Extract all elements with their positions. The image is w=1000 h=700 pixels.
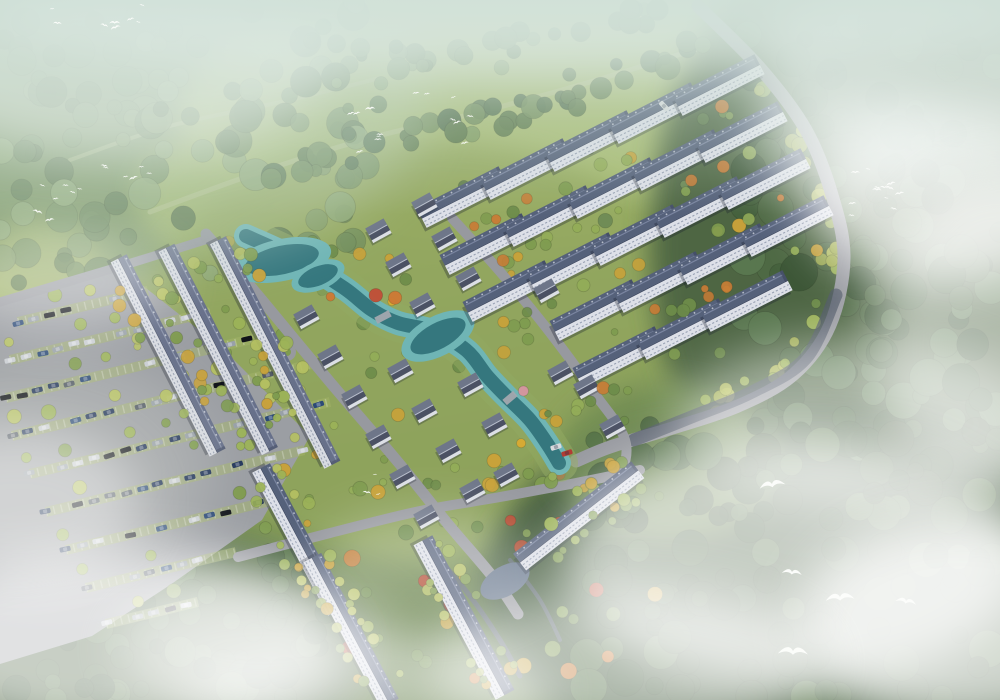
tree xyxy=(547,299,557,309)
tree xyxy=(296,361,309,374)
tree xyxy=(505,515,516,526)
tree xyxy=(369,289,383,303)
tree xyxy=(508,320,521,333)
tree xyxy=(703,291,714,302)
tree xyxy=(548,472,557,481)
tree xyxy=(353,248,366,261)
tree xyxy=(701,285,708,292)
tree xyxy=(522,307,532,317)
tree xyxy=(237,428,247,438)
tree xyxy=(265,421,273,429)
tree xyxy=(4,338,13,347)
tree xyxy=(811,299,821,309)
tree xyxy=(666,305,678,317)
tree xyxy=(650,304,661,315)
tree xyxy=(251,496,263,508)
tree xyxy=(497,346,510,359)
tree xyxy=(260,366,269,375)
tree xyxy=(614,268,625,279)
top-atmosphere xyxy=(0,0,1000,215)
tree xyxy=(577,279,590,292)
tree xyxy=(251,339,263,351)
tree xyxy=(598,213,613,228)
tree xyxy=(518,386,528,396)
tree xyxy=(255,482,265,492)
tree xyxy=(353,481,368,496)
tree xyxy=(260,379,270,389)
tree xyxy=(431,480,441,490)
tree xyxy=(216,385,227,396)
tree xyxy=(632,258,645,271)
tree xyxy=(591,225,599,233)
car-roof xyxy=(268,456,273,460)
tree xyxy=(389,291,402,304)
tree xyxy=(540,239,551,250)
tree xyxy=(135,333,145,343)
tree xyxy=(677,304,690,317)
tree xyxy=(258,351,268,361)
tree xyxy=(523,468,534,479)
tree xyxy=(197,385,206,394)
tree xyxy=(296,575,306,585)
tree xyxy=(290,490,299,499)
tree xyxy=(249,357,257,365)
tree xyxy=(166,319,174,327)
tree xyxy=(200,397,209,406)
tree xyxy=(597,381,610,394)
tree xyxy=(303,497,316,510)
tree xyxy=(545,410,552,417)
tree xyxy=(573,223,582,232)
tree xyxy=(791,246,800,255)
tree xyxy=(370,352,380,362)
tree xyxy=(498,316,509,327)
tree xyxy=(221,400,233,412)
tree xyxy=(288,409,296,417)
tree xyxy=(233,486,246,499)
tree xyxy=(544,517,558,531)
tree xyxy=(273,414,281,422)
tree xyxy=(196,370,207,381)
tree xyxy=(233,317,245,329)
tree xyxy=(243,264,253,274)
tree xyxy=(487,454,501,468)
tree xyxy=(330,421,338,429)
tree xyxy=(279,559,290,570)
tree xyxy=(277,470,286,479)
tree xyxy=(669,348,681,360)
tree xyxy=(304,520,311,527)
tree xyxy=(450,463,459,472)
tree xyxy=(222,305,230,313)
tree xyxy=(513,252,523,262)
tree xyxy=(379,479,386,486)
tree xyxy=(491,215,501,225)
tree xyxy=(714,347,725,358)
tree xyxy=(259,522,271,534)
tree xyxy=(294,563,302,571)
tree xyxy=(290,433,300,443)
tree xyxy=(611,329,618,336)
tree xyxy=(811,244,823,256)
tree xyxy=(194,339,203,348)
tree xyxy=(277,541,285,549)
tree xyxy=(607,460,620,473)
tree xyxy=(721,281,732,292)
tree xyxy=(585,396,596,407)
tree xyxy=(522,333,534,345)
tree xyxy=(550,415,562,427)
tree xyxy=(571,406,581,416)
tree xyxy=(470,222,479,231)
tree xyxy=(497,255,509,267)
tree xyxy=(326,292,335,301)
site-aerial-rendering xyxy=(0,0,1000,700)
tree xyxy=(400,273,412,285)
tree xyxy=(371,485,385,499)
tree xyxy=(623,386,632,395)
tree xyxy=(280,336,293,349)
tree xyxy=(181,350,195,364)
tree xyxy=(262,398,273,409)
tree xyxy=(826,255,838,267)
tree xyxy=(519,318,530,329)
tree xyxy=(711,223,725,237)
tree xyxy=(336,232,356,252)
tree xyxy=(572,486,582,496)
tree xyxy=(586,478,598,490)
tree xyxy=(748,312,782,346)
tree xyxy=(170,332,182,344)
tree xyxy=(214,274,223,283)
tree xyxy=(272,392,279,399)
tree xyxy=(608,384,620,396)
tree xyxy=(366,367,377,378)
aerial-rendering-stage xyxy=(0,0,1000,700)
tree xyxy=(517,439,526,448)
tree xyxy=(391,408,404,421)
tree xyxy=(236,442,245,451)
tree xyxy=(253,269,266,282)
